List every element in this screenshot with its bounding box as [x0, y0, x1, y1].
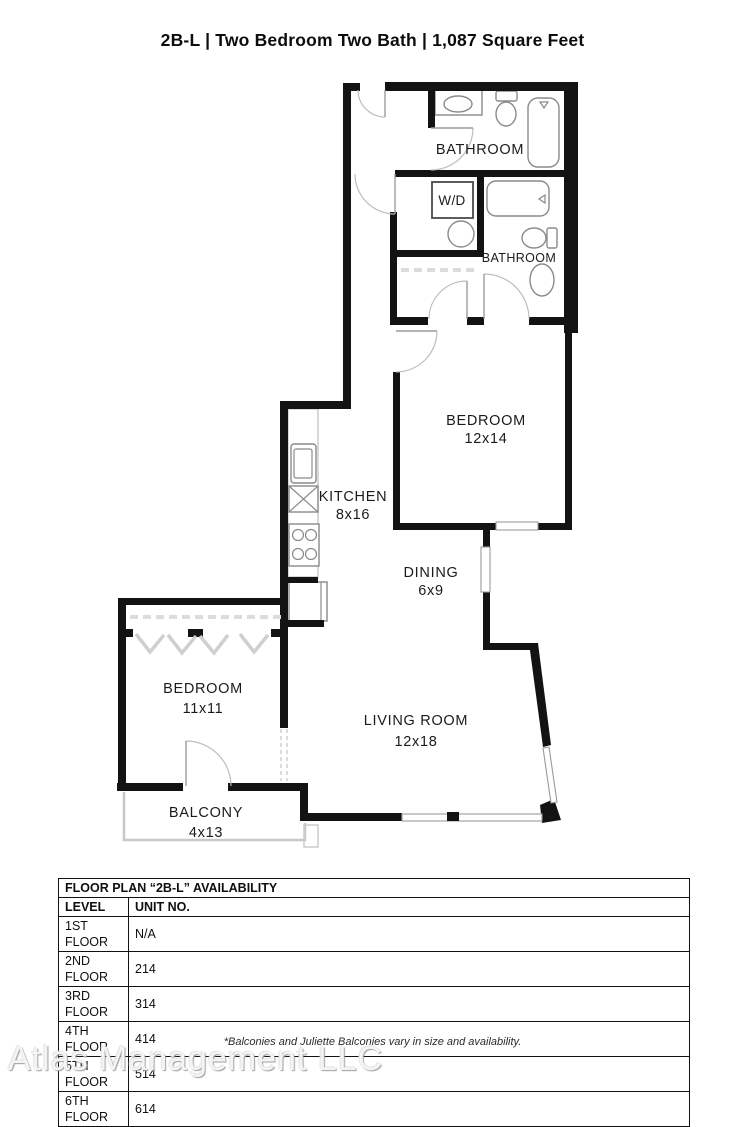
- window: [543, 747, 557, 803]
- room-label-bathroom-2: BATHROOM: [482, 251, 557, 265]
- unit-cell: 214: [129, 952, 690, 987]
- unit-cell: 314: [129, 987, 690, 1022]
- room-dims-living-room: 12x18: [394, 734, 437, 750]
- toilet-tank-icon: [496, 91, 517, 101]
- table-row: 6TH FLOOR 614: [59, 1092, 690, 1127]
- toilet-icon: [522, 228, 546, 248]
- table-row: 1ST FLOOR N/A: [59, 917, 690, 952]
- level-cell: 1ST FLOOR: [59, 917, 129, 952]
- table-header-row: LEVEL UNIT NO.: [59, 898, 690, 917]
- closet-rod-chevrons: [136, 634, 268, 653]
- kitchen-fixtures: [288, 409, 327, 621]
- level-cell: 6TH FLOOR: [59, 1092, 129, 1127]
- laundry-fixtures: [432, 182, 474, 247]
- bathroom-2-fixtures: [487, 181, 557, 296]
- level-cell: 3RD FLOOR: [59, 987, 129, 1022]
- room-label-bedroom-1: BEDROOM: [446, 413, 526, 429]
- room-label-bedroom-2: BEDROOM: [163, 681, 243, 697]
- sink-icon: [530, 264, 554, 296]
- table-title-row: FLOOR PLAN “2B-L” AVAILABILITY: [59, 879, 690, 898]
- sink-icon: [444, 96, 472, 112]
- window: [481, 547, 490, 592]
- room-dims-bedroom-2: 11x11: [183, 701, 224, 717]
- room-dims-kitchen: 8x16: [336, 507, 370, 523]
- room-label-balcony: BALCONY: [169, 805, 243, 821]
- unit-cell: N/A: [129, 917, 690, 952]
- room-dims-dining: 6x9: [418, 583, 443, 599]
- window: [496, 522, 538, 530]
- room-dims-balcony: 4x13: [189, 825, 223, 841]
- window: [402, 814, 542, 821]
- toilet-tank-icon: [547, 228, 557, 248]
- room-label-laundry: W/D: [438, 193, 465, 208]
- table-title: FLOOR PLAN “2B-L” AVAILABILITY: [59, 879, 690, 898]
- window-mullion: [447, 812, 459, 821]
- floor-plan: BATHROOM W/D BATHROOM BEDROOM 12x14 KITC…: [100, 75, 578, 865]
- balcony-disclaimer: *Balconies and Juliette Balconies vary i…: [0, 1036, 745, 1048]
- level-cell: 2ND FLOOR: [59, 952, 129, 987]
- room-label-living-room: LIVING ROOM: [364, 713, 468, 729]
- unit-cell: 614: [129, 1092, 690, 1127]
- table-row: 3RD FLOOR 314: [59, 987, 690, 1022]
- sink-icon: [448, 221, 474, 247]
- room-dims-bedroom-1: 12x14: [464, 431, 507, 447]
- room-labels: BATHROOM W/D BATHROOM BEDROOM 12x14 KITC…: [163, 142, 556, 841]
- room-label-kitchen: KITCHEN: [319, 489, 388, 505]
- availability-table: FLOOR PLAN “2B-L” AVAILABILITY LEVEL UNI…: [58, 878, 690, 1127]
- toilet-icon: [496, 102, 516, 126]
- table-row: 2ND FLOOR 214: [59, 952, 690, 987]
- room-label-dining: DINING: [404, 565, 459, 581]
- room-label-bathroom-1: BATHROOM: [436, 142, 524, 158]
- bathtub-icon: [528, 98, 559, 167]
- page-title: 2B-L | Two Bedroom Two Bath | 1,087 Squa…: [0, 30, 745, 51]
- column-header-unit: UNIT NO.: [129, 898, 690, 917]
- column-header-level: LEVEL: [59, 898, 129, 917]
